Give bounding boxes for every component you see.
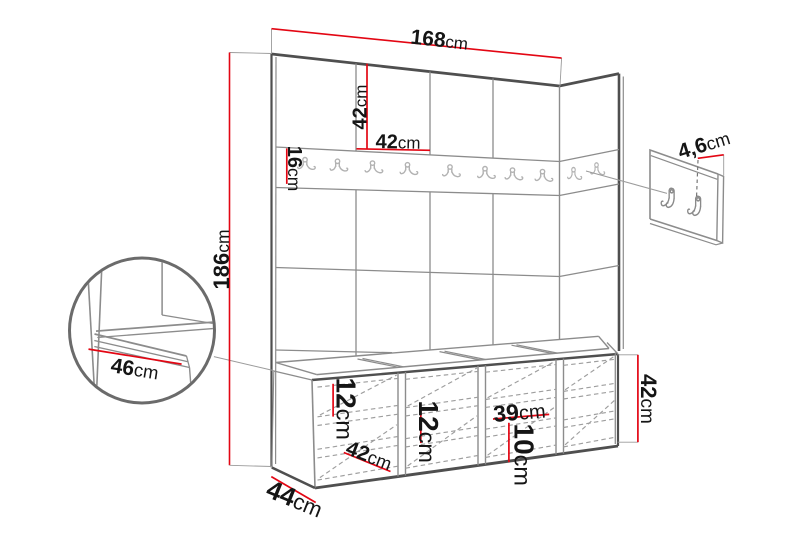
svg-text:16cm: 16cm	[283, 146, 305, 192]
svg-text:42cm: 42cm	[349, 85, 371, 130]
svg-text:186cm: 186cm	[209, 229, 234, 289]
svg-text:42cm: 42cm	[375, 131, 420, 154]
svg-text:12cm: 12cm	[331, 378, 362, 440]
svg-text:42cm: 42cm	[343, 437, 395, 475]
svg-text:168cm: 168cm	[409, 26, 469, 55]
svg-text:10cm: 10cm	[509, 424, 540, 486]
svg-text:39cm: 39cm	[492, 397, 546, 427]
svg-text:42cm: 42cm	[636, 374, 661, 424]
svg-text:44cm: 44cm	[262, 474, 327, 524]
svg-text:12cm: 12cm	[413, 401, 444, 463]
